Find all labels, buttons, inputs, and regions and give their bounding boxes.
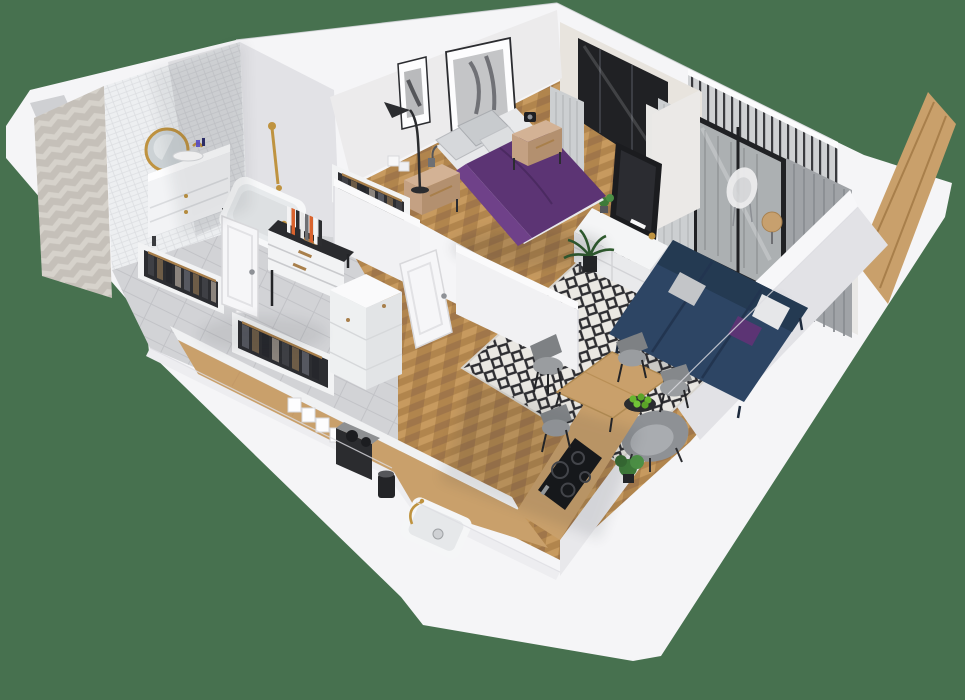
floorplan-render: 3D isometric apartment floor plan render (0, 0, 965, 700)
white-cabinet-column (330, 274, 402, 390)
floorplan-stage: 3D isometric apartment floor plan render (0, 0, 965, 700)
hall-door-leaf (222, 216, 258, 318)
divider-wall (652, 90, 700, 232)
shower-head (268, 122, 276, 130)
chevron-tile-wall (34, 86, 112, 298)
grinder (378, 471, 395, 499)
hall-shadow (198, 316, 326, 352)
